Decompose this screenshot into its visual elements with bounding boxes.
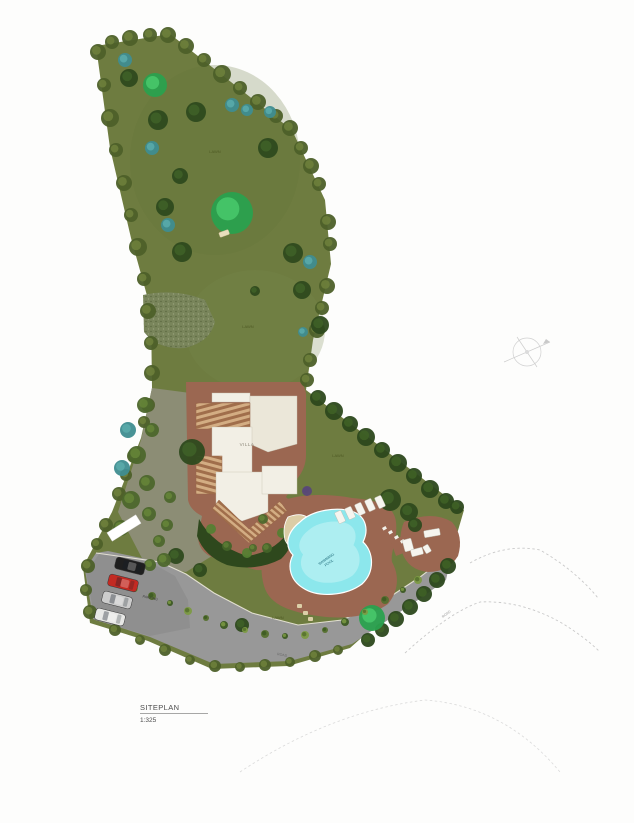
mixed-tree: [142, 507, 156, 521]
road-shrub: [242, 627, 248, 633]
boundary-tree: [109, 624, 121, 636]
road-shrub: [167, 600, 173, 606]
title-block: SITEPLAN 1:325: [140, 703, 208, 724]
boundary-tree: [122, 30, 138, 46]
dark-tree: [148, 110, 168, 130]
hedge-tree: [357, 428, 375, 446]
road-shrub: [184, 607, 192, 615]
lawn-label: LAWN: [242, 324, 254, 329]
dark-tree: [193, 563, 207, 577]
boundary-tree: [116, 175, 132, 191]
boundary-tree: [323, 237, 337, 251]
dark-tree: [186, 102, 206, 122]
boundary-tree: [97, 78, 111, 92]
boundary-tree: [300, 373, 314, 387]
boundary-tree: [159, 644, 171, 656]
hedge-tree: [325, 402, 343, 420]
road-shrub: [362, 609, 368, 615]
teal-tree: [241, 104, 253, 116]
mixed-tree: [157, 553, 171, 567]
dark-tree: [283, 243, 303, 263]
dark-tree: [311, 316, 329, 334]
teal-tree: [225, 98, 239, 112]
boundary-tree: [233, 81, 247, 95]
boundary-tree: [178, 38, 194, 54]
bright-tree: [143, 73, 167, 97]
siteplan-canvas: VILLA SWIMMING POOL LAWN LAWN LAWN LAWN …: [0, 0, 634, 823]
dark-tree: [156, 198, 174, 216]
road-shrub: [381, 596, 389, 604]
boundary-tree: [101, 109, 119, 127]
boundary-tree: [213, 65, 231, 83]
dashed-road-line: [405, 602, 600, 653]
boundary-tree: [309, 650, 321, 662]
boundary-tree: [109, 143, 123, 157]
dark-tree: [250, 286, 260, 296]
mixed-tree: [145, 423, 159, 437]
road-shrub: [220, 621, 228, 629]
boundary-tree: [303, 353, 317, 367]
boundary-tree: [294, 141, 308, 155]
boundary-tree: [144, 336, 158, 350]
boundary-tree: [285, 657, 295, 667]
bed-shrub: [222, 541, 232, 551]
road-shrub: [282, 633, 288, 639]
bed-shrub: [262, 543, 272, 553]
boundary-tree: [140, 303, 156, 319]
mixed-tree: [161, 519, 173, 531]
siteplan-drawing: VILLA SWIMMING POOL LAWN LAWN LAWN LAWN …: [0, 0, 634, 823]
lawn-label: LAWN: [332, 453, 344, 458]
hedge-tree: [310, 390, 326, 406]
boundary-tree: [135, 635, 145, 645]
dashed-road-line: [240, 700, 560, 772]
swimming-pool: SWIMMING POOL: [288, 509, 372, 594]
mixed-tree: [137, 397, 153, 413]
boundary-tree: [160, 27, 176, 43]
mixed-tree: [144, 559, 156, 571]
road-shrub: [414, 576, 422, 584]
boundary-tree: [81, 559, 95, 573]
road-shrub: [400, 587, 406, 593]
mixed-tree: [153, 535, 165, 547]
road-shrub: [341, 618, 349, 626]
teal-tree: [118, 53, 132, 67]
boundary-tree: [80, 584, 92, 596]
boundary-tree: [209, 660, 221, 672]
hedge-tree: [374, 442, 390, 458]
boundary-tree: [320, 214, 336, 230]
teal-tree: [298, 327, 308, 337]
boundary-tree: [197, 53, 211, 67]
boundary-tree: [312, 177, 326, 191]
boundary-tree: [124, 208, 138, 222]
dark-tree: [408, 518, 422, 532]
boundary-tree: [315, 301, 329, 315]
teal-tree: [161, 218, 175, 232]
mixed-tree: [258, 514, 268, 524]
lawn-label: LAWN: [272, 615, 284, 620]
mixed-tree: [128, 446, 146, 464]
road-shrub: [203, 615, 209, 621]
hedge-tree: [450, 500, 464, 514]
pergola-deck-a: [196, 403, 250, 429]
pool-water-highlight: [299, 521, 359, 582]
hedge-tree: [388, 611, 404, 627]
bed-shrub: [206, 524, 216, 534]
mixed-tree: [164, 491, 176, 503]
teal-tree: [120, 422, 136, 438]
hedge-tree: [421, 480, 439, 498]
boundary-tree: [282, 120, 298, 136]
boundary-tree: [90, 44, 106, 60]
hedge-tree: [406, 468, 422, 484]
mixed-tree: [249, 544, 257, 552]
boundary-tree: [137, 272, 151, 286]
boundary-tree: [259, 659, 271, 671]
bright-tree: [211, 192, 253, 234]
siteplan-label: SITEPLAN: [140, 703, 179, 712]
dark-tree: [172, 168, 188, 184]
stepping-stone: [297, 604, 302, 608]
dark-tree: [258, 138, 278, 158]
building-balcony: [212, 393, 250, 402]
purple-tree: [302, 486, 312, 496]
stepping-stone: [308, 617, 313, 621]
hedge-tree: [402, 599, 418, 615]
mixed-tree: [122, 491, 140, 509]
hedge-tree: [440, 558, 456, 574]
north-arrow-icon: [504, 337, 550, 367]
teal-tree: [264, 106, 276, 118]
scale-label: 1:325: [140, 717, 157, 724]
stepping-stone: [303, 611, 308, 615]
mixed-tree: [139, 475, 155, 491]
teal-tree: [303, 255, 317, 269]
dark-tree: [172, 242, 192, 262]
hedge-tree: [389, 454, 407, 472]
boundary-tree: [235, 662, 245, 672]
road-shrub: [301, 631, 309, 639]
bright-tree: [359, 605, 385, 631]
boundary-tree: [99, 518, 113, 532]
boundary-tree: [333, 645, 343, 655]
boundary-tree: [91, 538, 103, 550]
boundary-tree: [144, 365, 160, 381]
villa-label: VILLA: [240, 442, 255, 447]
boundary-tree: [143, 28, 157, 42]
hedge-tree: [416, 586, 432, 602]
boundary-tree: [185, 655, 195, 665]
lawn-label: LAWN: [209, 149, 221, 154]
road-shrub: [261, 630, 269, 638]
teal-tree: [145, 141, 159, 155]
road-shrub: [322, 627, 328, 633]
boundary-tree: [105, 35, 119, 49]
boundary-tree: [129, 238, 147, 256]
dark-tree: [293, 281, 311, 299]
hedge-tree: [429, 572, 445, 588]
building-roof-terrace: [250, 396, 297, 452]
dark-tree: [120, 69, 138, 87]
hedge-tree: [361, 633, 375, 647]
teal-tree: [114, 460, 130, 476]
dark-tree: [179, 439, 205, 465]
dashed-road-line: [470, 548, 598, 598]
boundary-tree: [319, 278, 335, 294]
hedge-tree: [342, 416, 358, 432]
building-wing-right: [262, 466, 297, 494]
boundary-tree: [303, 158, 319, 174]
